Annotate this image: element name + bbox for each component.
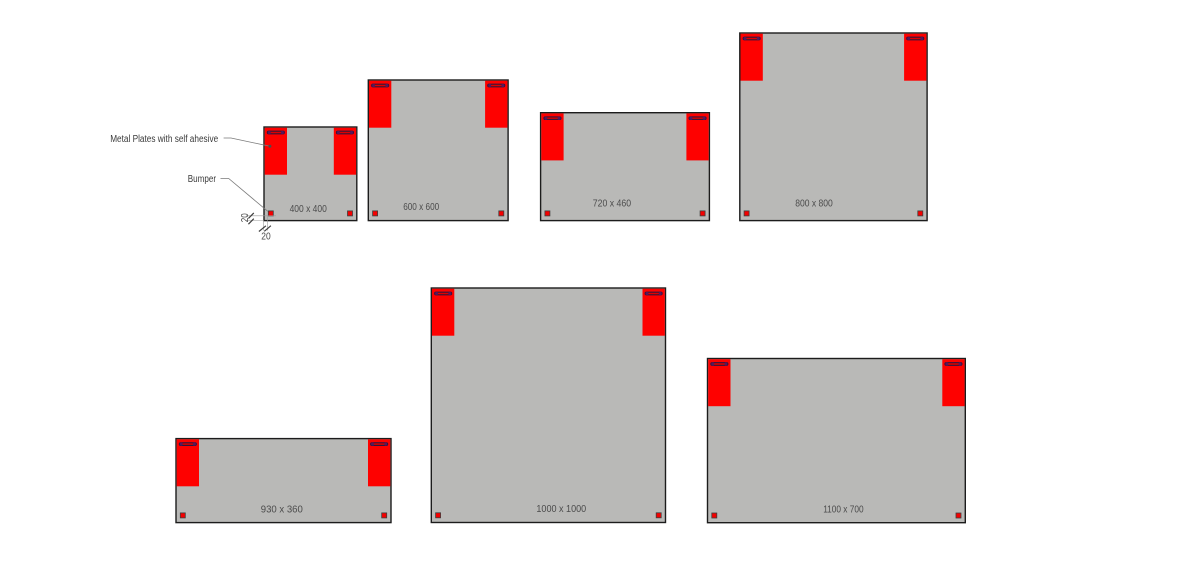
svg-text:20: 20 (261, 232, 271, 243)
svg-text:720 x 460: 720 x 460 (593, 199, 632, 210)
svg-text:1100 x 700: 1100 x 700 (823, 504, 864, 515)
svg-text:400 x 400: 400 x 400 (290, 204, 327, 215)
svg-text:1000 x 1000: 1000 x 1000 (536, 504, 586, 515)
svg-text:Bumper: Bumper (188, 174, 217, 185)
svg-text:800 x 800: 800 x 800 (795, 199, 833, 210)
svg-text:600 x 600: 600 x 600 (403, 202, 439, 213)
svg-text:20: 20 (240, 213, 251, 222)
svg-text:930 x 360: 930 x 360 (261, 504, 303, 515)
svg-text:Metal Plates with self ahesive: Metal Plates with self ahesive (110, 134, 218, 145)
